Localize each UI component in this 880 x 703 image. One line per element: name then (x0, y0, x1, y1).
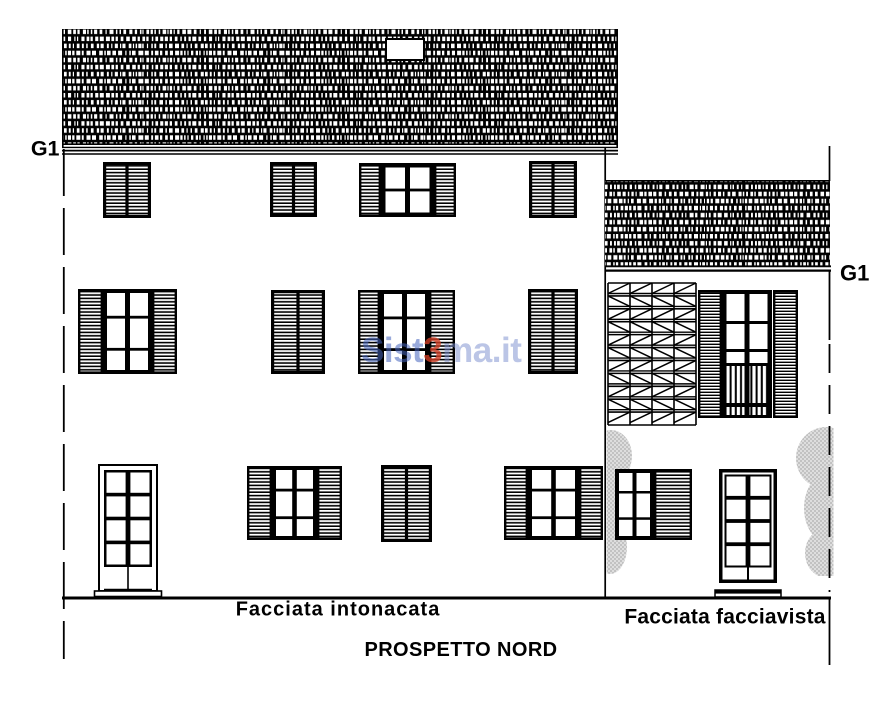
svg-text:Facciata intonacata: Facciata intonacata (236, 599, 441, 621)
svg-text:Facciata facciavista: Facciata facciavista (624, 606, 825, 629)
svg-text:G1: G1 (840, 261, 869, 286)
svg-text:G1: G1 (31, 137, 60, 161)
svg-text:PROSPETTO NORD: PROSPETTO NORD (364, 639, 557, 661)
svg-text:Sist3ma.it: Sist3ma.it (361, 331, 522, 370)
